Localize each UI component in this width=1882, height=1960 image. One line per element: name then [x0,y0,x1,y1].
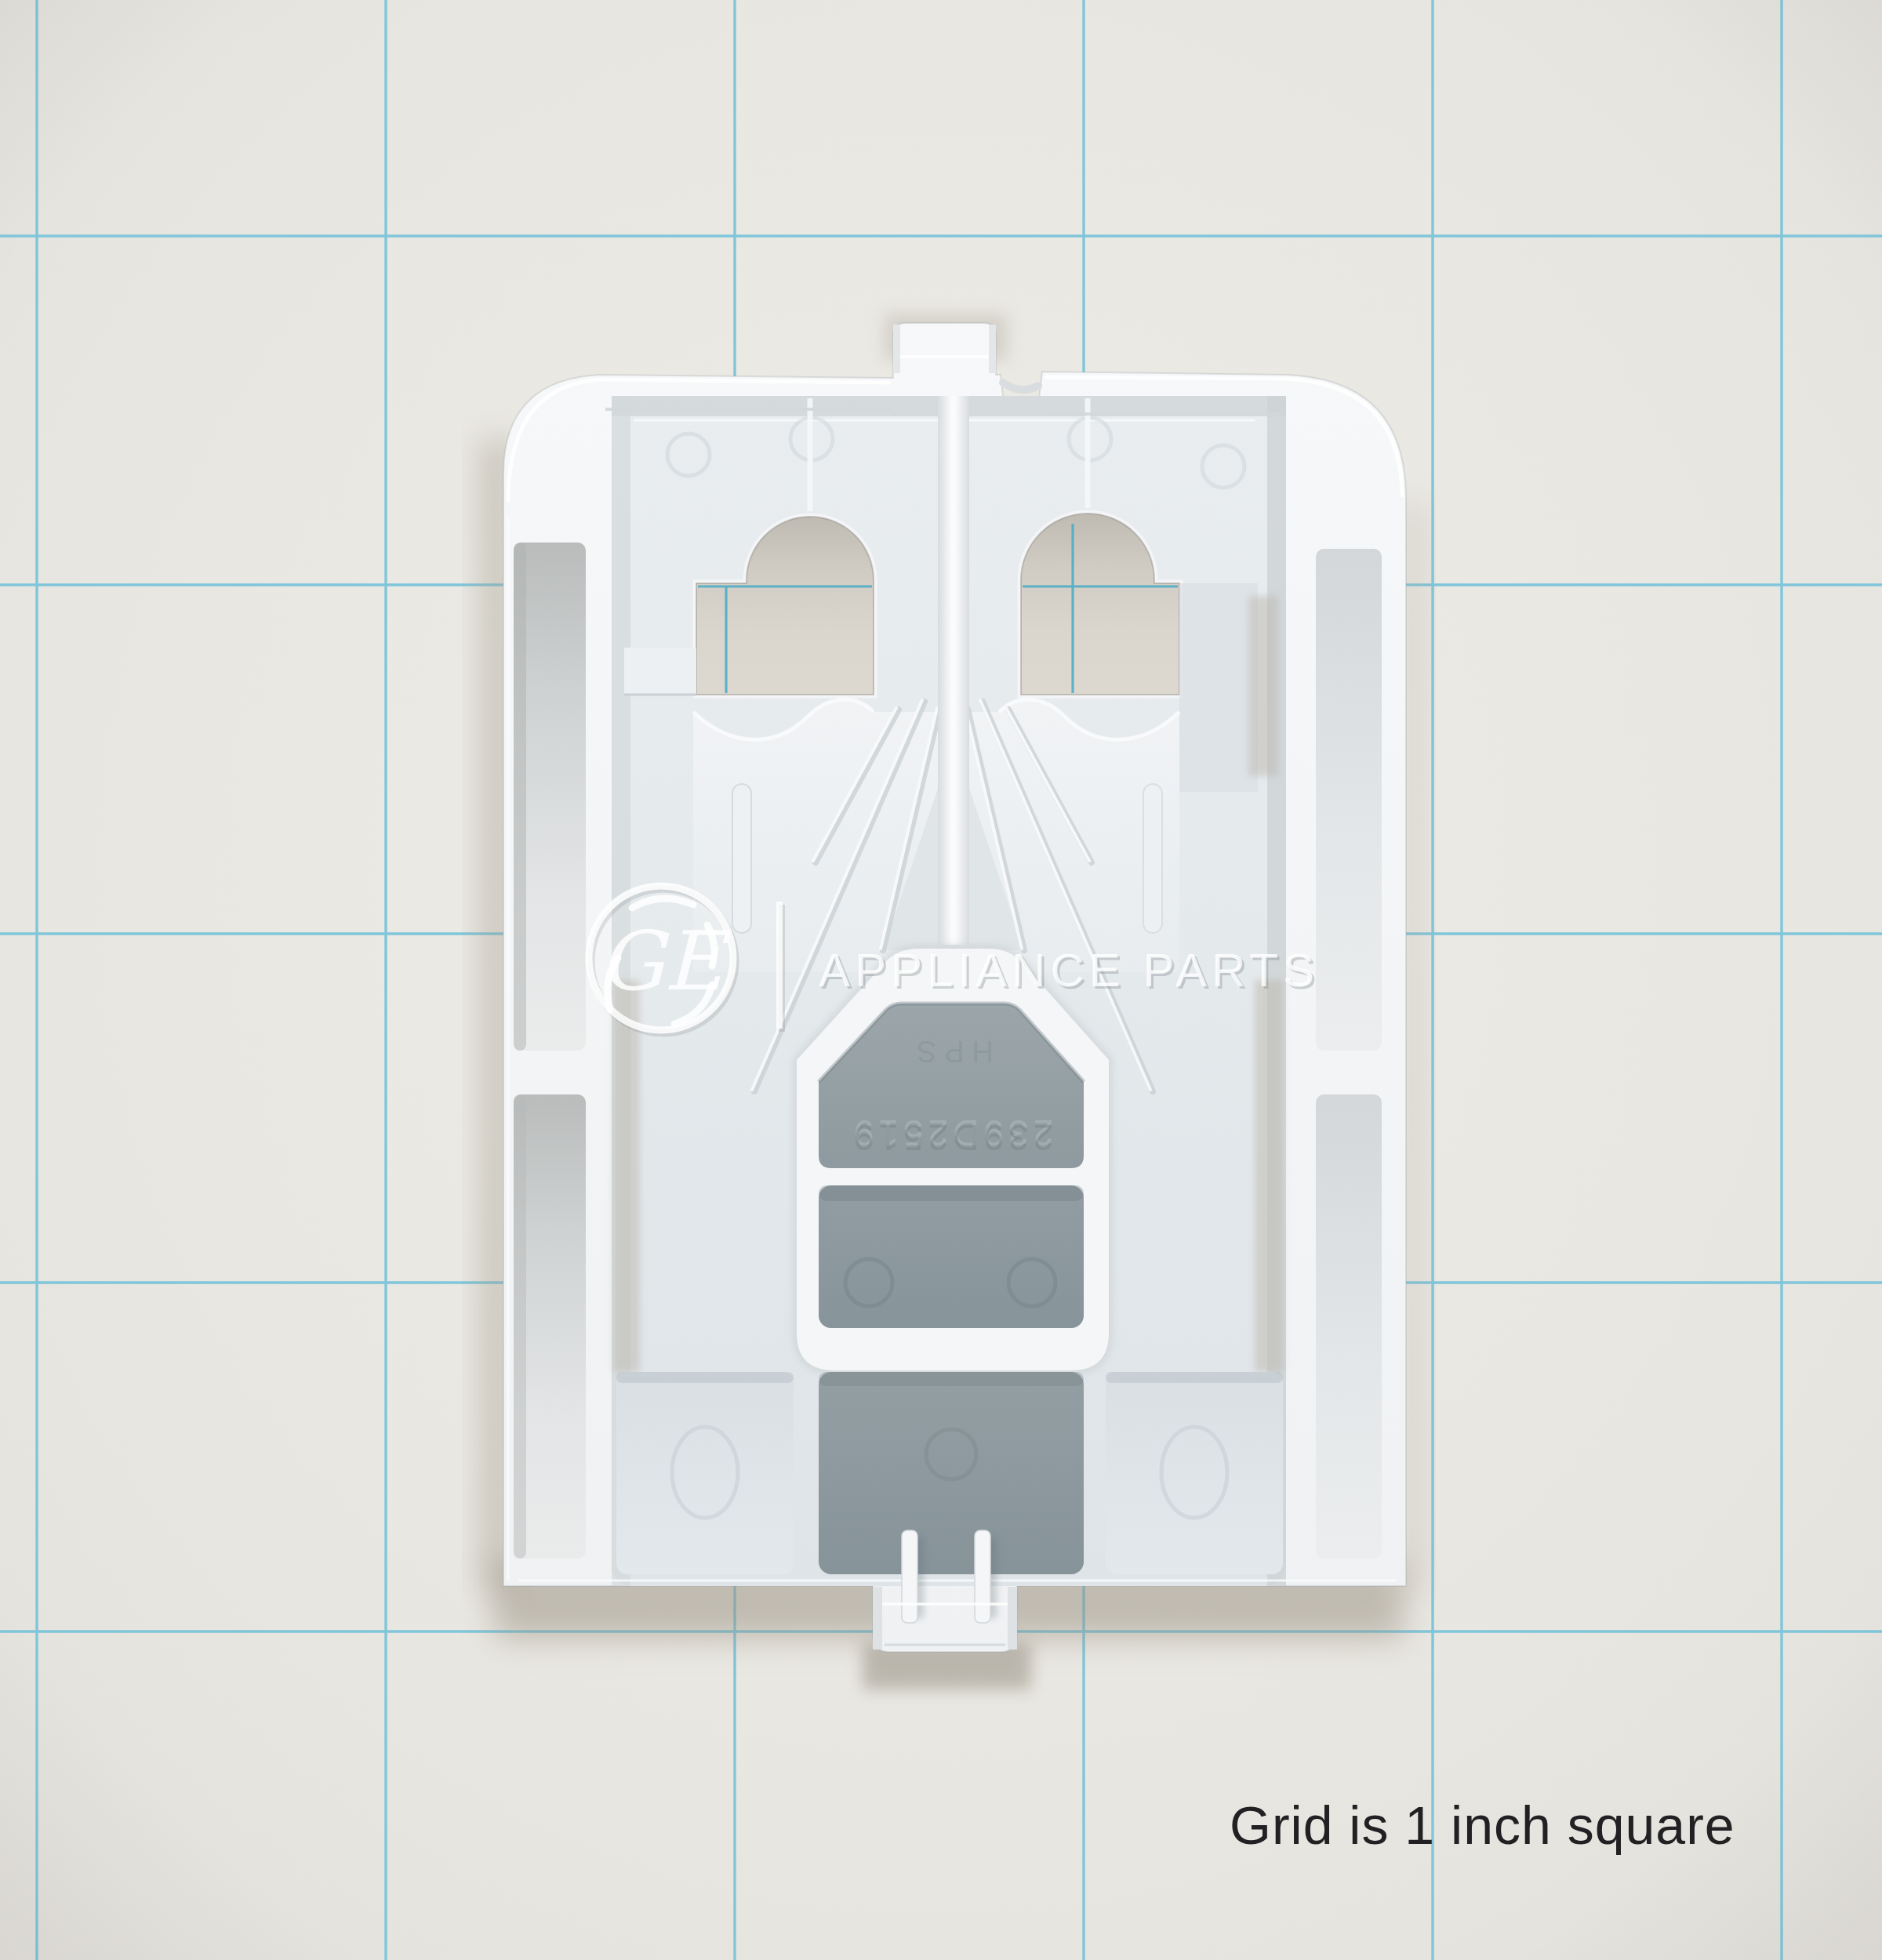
photo-canvas: 239D2519 239D2519 HPS [0,0,1882,1960]
vignette-overlay [0,0,1882,1960]
product-photo: 239D2519 239D2519 HPS [0,0,1882,1960]
